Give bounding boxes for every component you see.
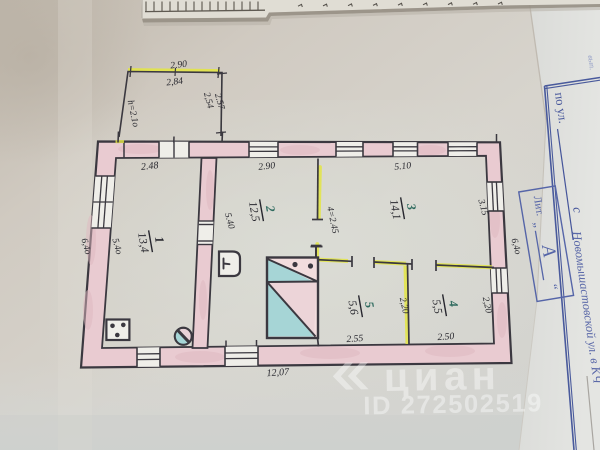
svg-text:2.55: 2.55 bbox=[346, 333, 364, 345]
svg-text:2.50: 2.50 bbox=[437, 331, 455, 343]
svg-text:12,07: 12,07 bbox=[266, 367, 290, 380]
svg-text:5,5: 5,5 bbox=[429, 299, 443, 315]
svg-text:2.90: 2.90 bbox=[258, 160, 276, 173]
svg-text:2.48: 2.48 bbox=[140, 160, 159, 173]
svg-text:2,84: 2,84 bbox=[166, 76, 184, 89]
svg-text:5.10: 5.10 bbox=[394, 160, 412, 173]
svg-text:ID 272502519: ID 272502519 bbox=[363, 389, 541, 420]
svg-text:2.90: 2.90 bbox=[170, 59, 188, 72]
svg-text:5,6: 5,6 bbox=[345, 300, 359, 316]
